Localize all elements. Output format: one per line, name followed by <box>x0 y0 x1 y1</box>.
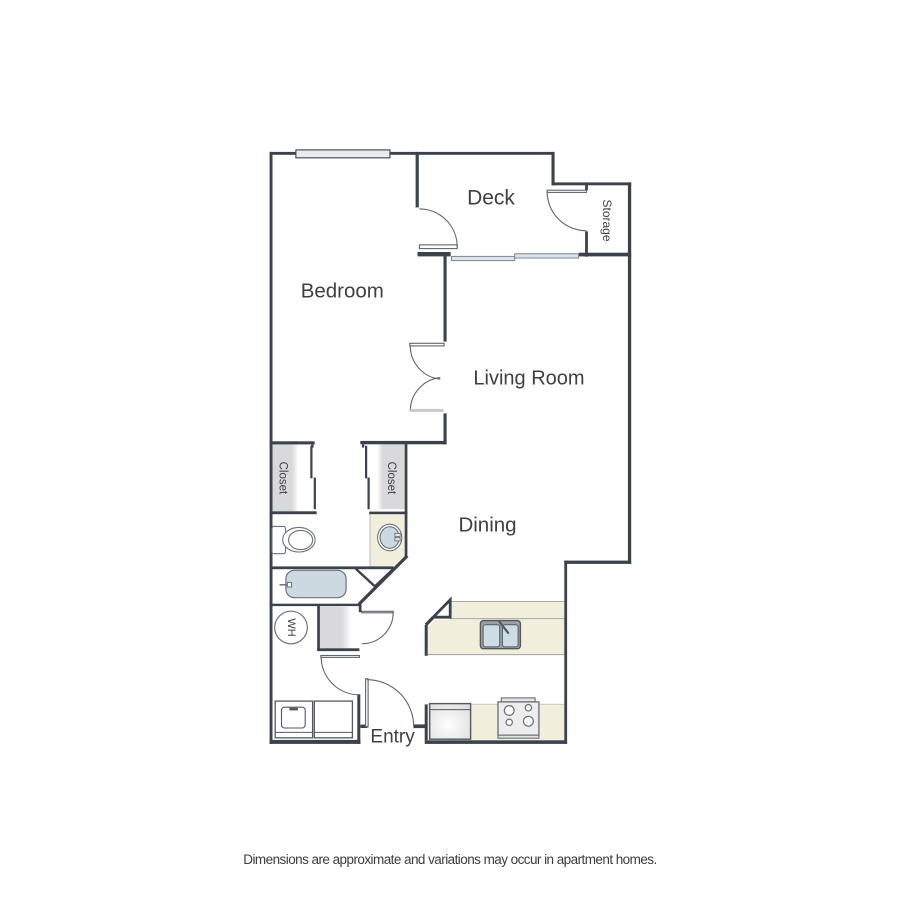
svg-text:Closet: Closet <box>277 462 289 495</box>
svg-text:Deck: Deck <box>467 187 515 210</box>
svg-text:Dining: Dining <box>458 514 516 537</box>
svg-text:Dimensions are approximate and: Dimensions are approximate and variation… <box>243 852 656 867</box>
svg-text:Bedroom: Bedroom <box>301 280 384 303</box>
svg-text:WH: WH <box>285 618 297 636</box>
svg-text:Entry: Entry <box>370 727 415 748</box>
svg-text:Living Room: Living Room <box>473 368 584 390</box>
svg-text:Storage: Storage <box>600 199 614 241</box>
svg-text:Closet: Closet <box>385 462 397 495</box>
